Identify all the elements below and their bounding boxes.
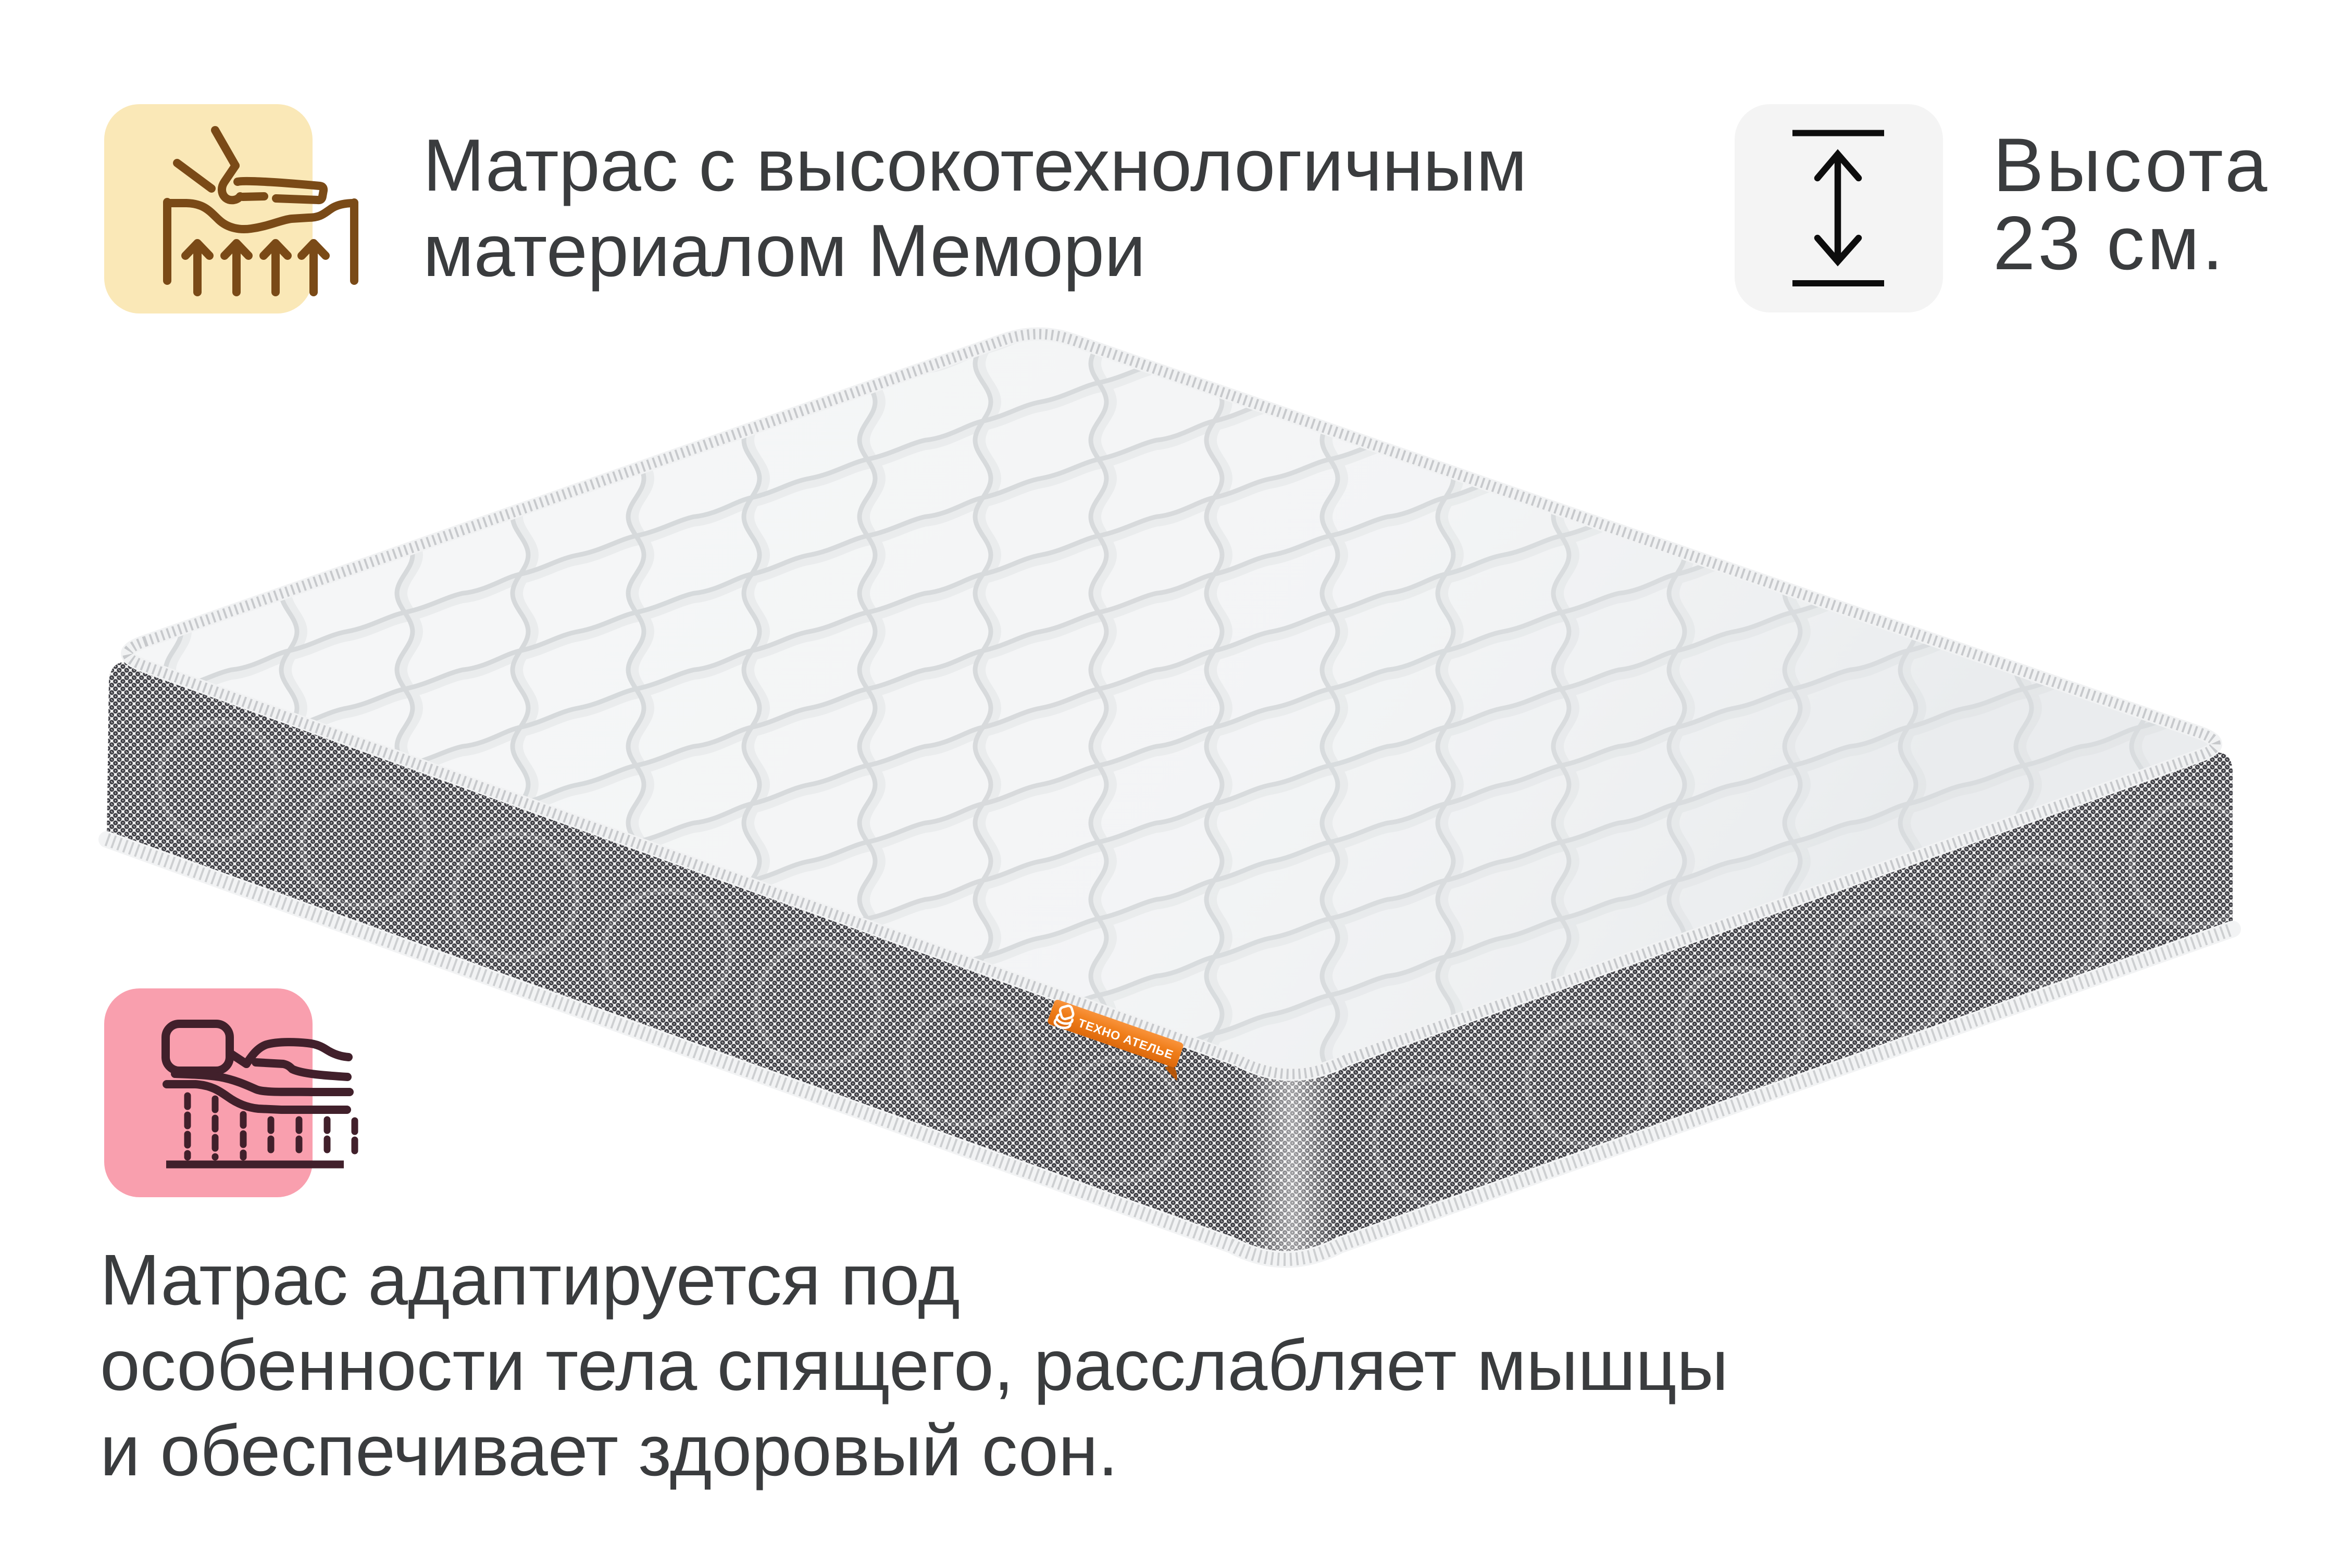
svg-text:Матрас адаптируется под: Матрас адаптируется под — [100, 1240, 960, 1320]
svg-text:23 см.: 23 см. — [1993, 200, 2226, 285]
svg-text:Высота: Высота — [1993, 122, 2270, 207]
svg-text:материалом Мемори: материалом Мемори — [423, 209, 1145, 292]
svg-text:особенности тела спящего, расс: особенности тела спящего, расслабляет мы… — [100, 1325, 1728, 1406]
svg-text:и обеспечивает здоровый сон.: и обеспечивает здоровый сон. — [100, 1411, 1118, 1491]
svg-text:Матрас с высокотехнологичным: Матрас с высокотехнологичным — [423, 124, 1527, 207]
